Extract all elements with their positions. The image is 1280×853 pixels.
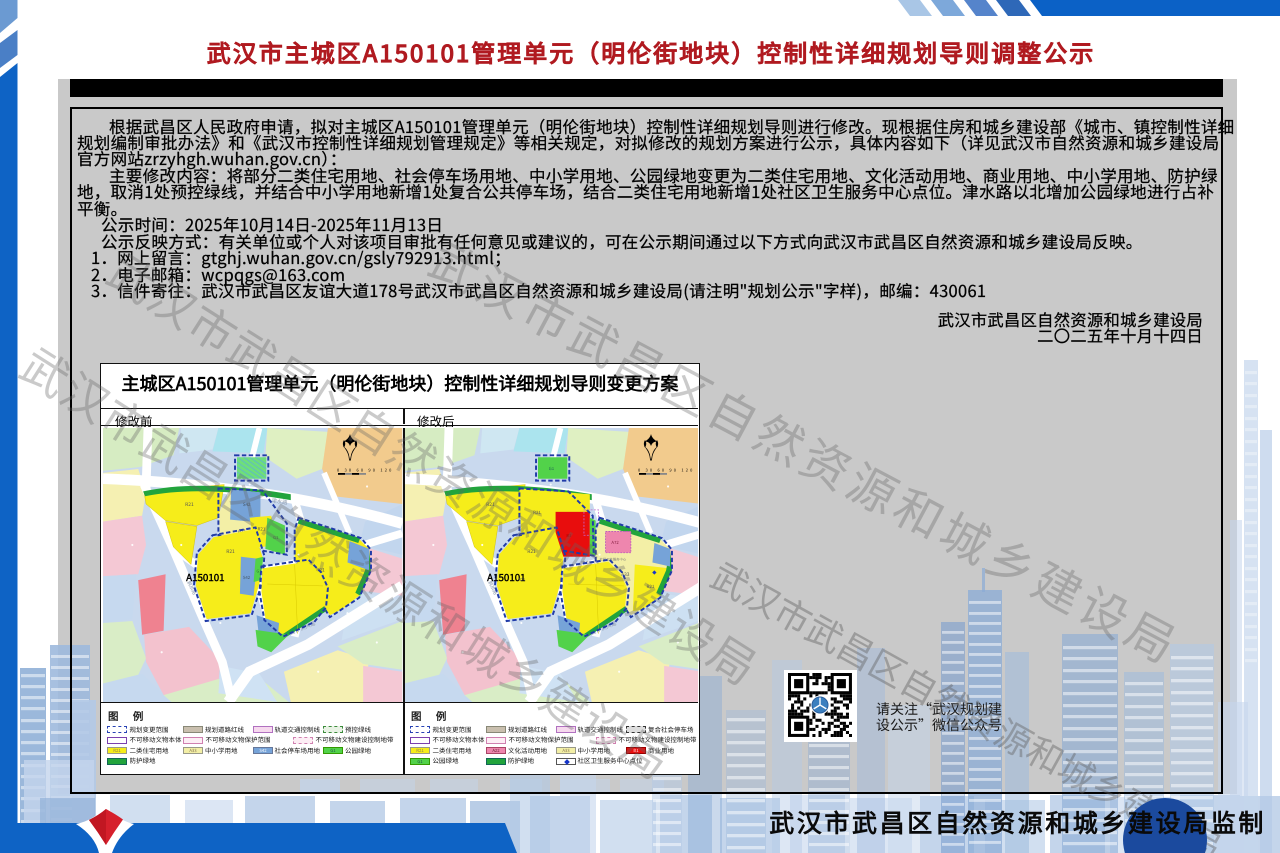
svg-text:R21: R21 xyxy=(527,547,536,554)
svg-text:R21: R21 xyxy=(533,509,541,515)
svg-text:R21: R21 xyxy=(226,547,235,554)
svg-text:R21: R21 xyxy=(185,501,194,508)
svg-text:A150101: A150101 xyxy=(185,570,224,584)
svg-text:R21: R21 xyxy=(647,583,655,589)
svg-text:R21: R21 xyxy=(258,526,266,532)
svg-text:A72: A72 xyxy=(611,540,619,546)
svg-text:G1: G1 xyxy=(273,535,278,541)
svg-text:G1: G1 xyxy=(549,465,555,471)
svg-text:S42: S42 xyxy=(243,502,251,508)
svg-text:0 30 60 90 120: 0 30 60 90 120 xyxy=(638,467,695,473)
svg-text:R21: R21 xyxy=(518,577,525,583)
svg-text:0 30 60 90 120: 0 30 60 90 120 xyxy=(337,467,394,473)
svg-text:R21: R21 xyxy=(486,501,495,508)
svg-text:B1: B1 xyxy=(566,533,571,539)
svg-text:S42: S42 xyxy=(243,575,251,581)
